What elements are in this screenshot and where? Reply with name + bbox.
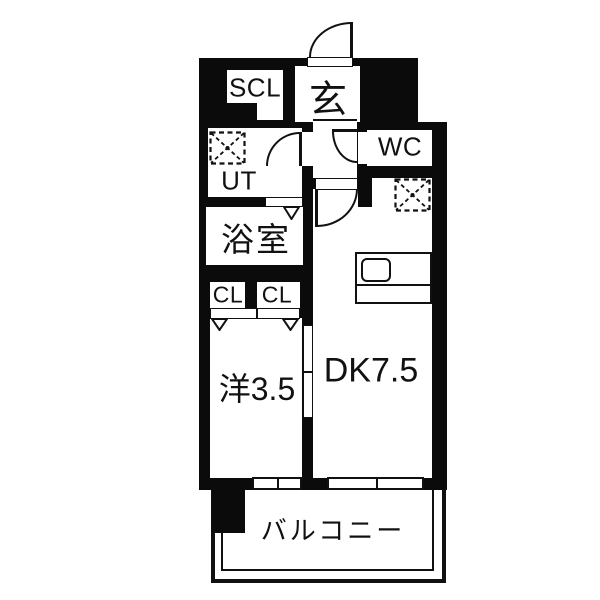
ut-door-leaf-icon [299, 132, 302, 166]
window-pane-split [376, 479, 378, 488]
label-ut: UT [221, 166, 257, 197]
label-wc: WC [378, 132, 422, 163]
refrigerator-space-icon [394, 178, 431, 212]
western-dk-sliding-door [303, 325, 313, 418]
room-dk-mid [358, 207, 372, 478]
wall-balcony-pillar [212, 480, 245, 533]
label-balcony: バルコニー [261, 511, 405, 548]
label-genkan: 玄 [309, 69, 347, 124]
ut-doorway-gap [301, 132, 313, 166]
entrance-door-swing-icon [309, 22, 352, 57]
entrance-threshold [307, 57, 353, 67]
closet-left-triangle-icon [211, 318, 228, 331]
floorplan-canvas: { "plan": { "rooms": { "scl": { "label":… [0, 0, 600, 600]
window-dk [327, 477, 424, 490]
label-dk: DK7.5 [324, 352, 419, 391]
kitchen-sink [361, 258, 391, 282]
label-closet-right: CL [262, 282, 292, 309]
washing-machine-pan-icon [209, 131, 246, 165]
entrance-door-leaf-icon [350, 22, 353, 57]
room-dk-left [313, 189, 358, 478]
label-closet-left: CL [213, 282, 243, 309]
kitchen-counter-lower [355, 284, 432, 304]
window-pane-split [277, 479, 279, 488]
closet-right-triangle-icon [282, 318, 299, 331]
sliding-door-panel-split [304, 371, 312, 373]
wc-doorway-gap [358, 132, 367, 164]
wc-door-leaf-icon [332, 129, 357, 132]
label-western-room: 洋3.5 [219, 364, 296, 410]
room-dk-right [372, 178, 432, 478]
label-scl: SCL [229, 73, 281, 104]
window-western-room [252, 477, 302, 490]
label-bathroom: 浴室 [221, 213, 291, 261]
dk-door-leaf-icon [315, 189, 318, 227]
